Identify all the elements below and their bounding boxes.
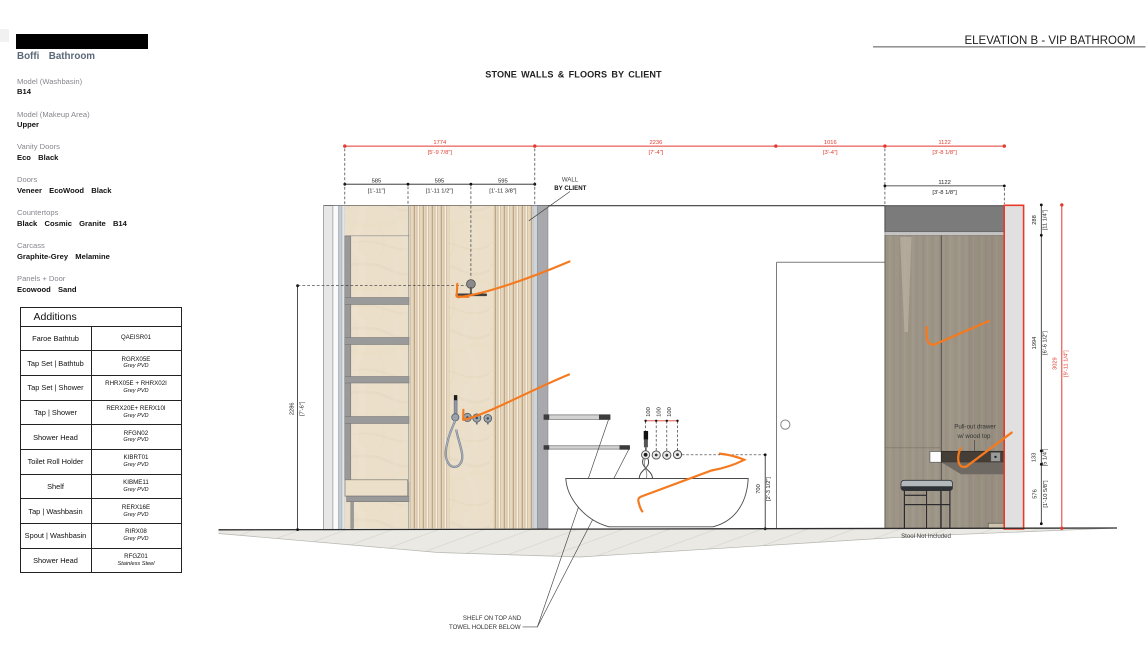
svg-text:Pull-out drawer: Pull-out drawer	[954, 424, 996, 431]
svg-text:585: 585	[372, 179, 382, 185]
svg-text:[5 1/4"]: [5 1/4"]	[1043, 448, 1049, 466]
svg-text:2236: 2236	[649, 140, 662, 146]
svg-text:WALL: WALL	[562, 176, 579, 183]
svg-text:1122: 1122	[938, 180, 950, 186]
svg-text:1994: 1994	[1032, 337, 1038, 350]
svg-text:[1'-10 5/8"]: [1'-10 5/8"]	[1043, 480, 1049, 508]
svg-text:TOWEL HOLDER BELOW: TOWEL HOLDER BELOW	[449, 625, 521, 631]
svg-text:576: 576	[1032, 489, 1038, 499]
svg-text:700: 700	[756, 484, 762, 494]
svg-text:[3'-4"]: [3'-4"]	[823, 150, 838, 156]
svg-text:[1'-11 1/2"]: [1'-11 1/2"]	[426, 188, 454, 194]
svg-text:[9'-11 1/4"]: [9'-11 1/4"]	[1063, 350, 1069, 377]
svg-text:[6'-6 1/2"]: [6'-6 1/2"]	[1043, 331, 1049, 355]
svg-text:[3'-8 1/8"]: [3'-8 1/8"]	[932, 150, 957, 156]
svg-text:1122: 1122	[938, 140, 950, 146]
svg-text:[5'-9 7/8"]: [5'-9 7/8"]	[428, 150, 453, 156]
svg-text:595: 595	[498, 179, 508, 185]
svg-text:[2'-3 1/2"]: [2'-3 1/2"]	[766, 477, 772, 501]
svg-text:STONE WALLS & FLOORS BY CLIENT: STONE WALLS & FLOORS BY CLIENT	[485, 69, 662, 79]
svg-text:[11 1/4"]: [11 1/4"]	[1043, 209, 1049, 230]
svg-text:100: 100	[646, 407, 652, 417]
svg-text:133: 133	[1032, 453, 1038, 463]
svg-text:1774: 1774	[433, 140, 447, 146]
svg-text:[1'-11 3/8"]: [1'-11 3/8"]	[489, 188, 517, 194]
svg-text:[1'-11"]: [1'-11"]	[368, 188, 386, 194]
svg-text:1016: 1016	[824, 140, 837, 146]
svg-text:w/ wood top: w/ wood top	[956, 433, 991, 440]
svg-text:[7'-6"]: [7'-6"]	[299, 401, 305, 416]
svg-text:3029: 3029	[1053, 357, 1059, 370]
svg-text:288: 288	[1032, 215, 1038, 225]
svg-text:ELEVATION B - VIP BATHROOM: ELEVATION B - VIP BATHROOM	[964, 35, 1135, 47]
svg-text:2286: 2286	[289, 402, 295, 415]
svg-text:BY CLIENT: BY CLIENT	[554, 185, 586, 192]
svg-text:100: 100	[667, 407, 673, 417]
svg-text:100: 100	[657, 407, 663, 417]
svg-text:SHELF ON TOP AND: SHELF ON TOP AND	[463, 616, 522, 622]
svg-text:595: 595	[435, 179, 445, 185]
svg-text:Stool Not Included: Stool Not Included	[901, 533, 951, 540]
svg-text:[7'-4"]: [7'-4"]	[649, 150, 664, 156]
svg-text:[3'-8 1/8"]: [3'-8 1/8"]	[932, 190, 957, 196]
